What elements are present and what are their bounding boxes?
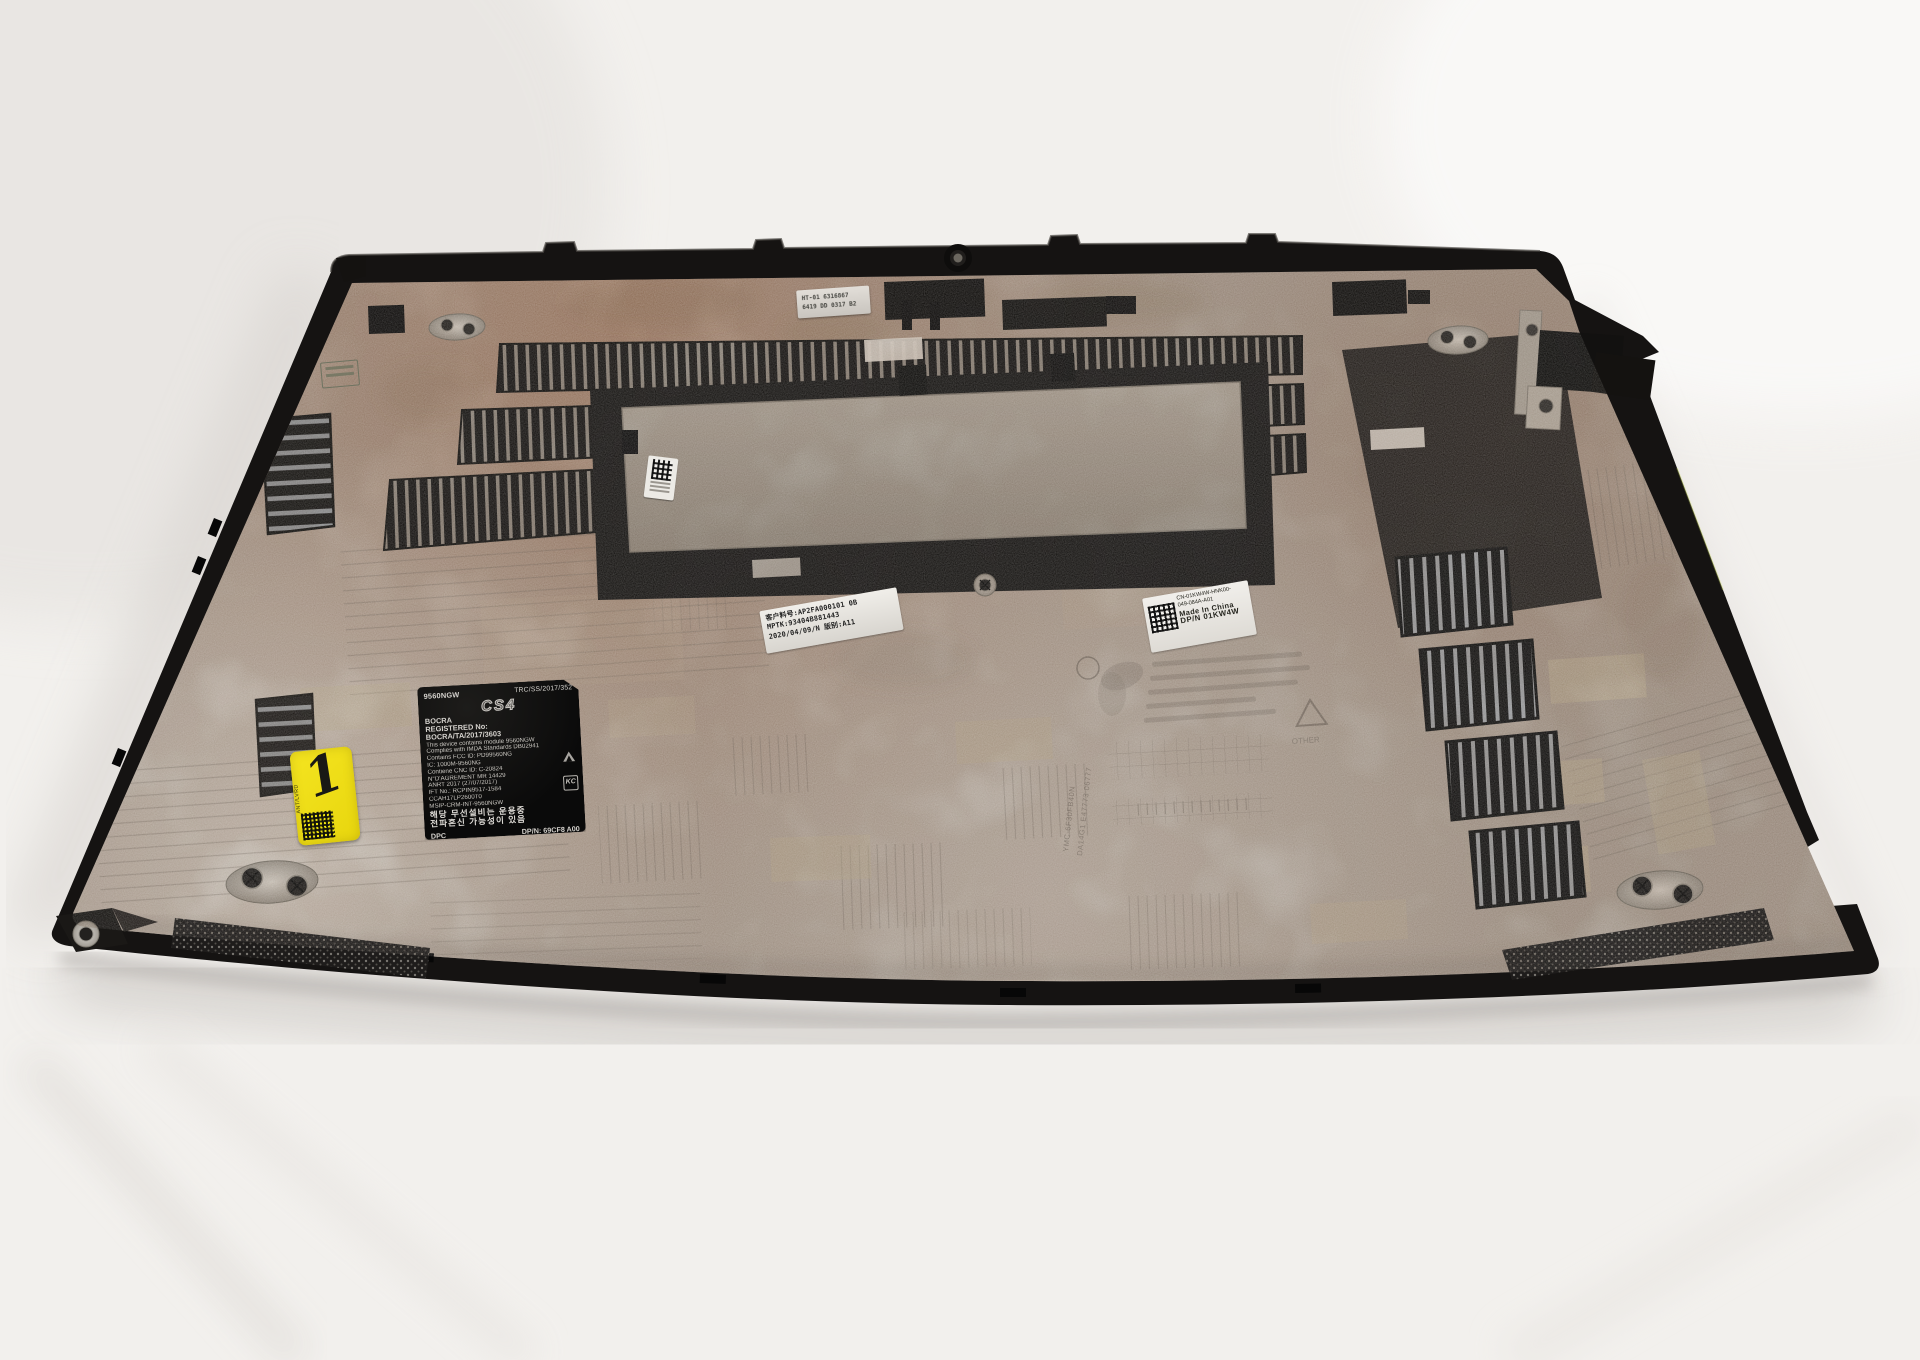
datamatrix-icon: [301, 810, 336, 840]
service-tag-label: HT-01 6316867 6419 DD 0317 B2: [796, 285, 871, 318]
small-qr-label: [644, 455, 679, 500]
laptop-bottom-cover: OTHER YMC-6F30FB40N DA14G1 E47773 06777: [40, 228, 1888, 1020]
inspection-side-text: ANT/LVRD: [293, 784, 302, 814]
regulatory-model: 9560NGW: [423, 690, 459, 701]
kc-certification-icon: KC: [563, 775, 579, 791]
cover-photo-rendering: OTHER YMC-6F30FB40N DA14G1 E47773 06777: [0, 0, 1920, 1360]
regulatory-label: 9560NGW TRC/SS/2017/352 CS4 BOCRA REGIST…: [417, 679, 586, 840]
qr-code-icon: [651, 459, 673, 481]
micro-text-line: [649, 489, 669, 493]
qr-code-icon: [1148, 602, 1179, 633]
foil-stripe: [326, 372, 354, 377]
green-foil-sticker: [320, 359, 360, 388]
yellow-inspection-label: 1 ANT/LVRD: [289, 746, 360, 846]
recycle-triangle-icon: [563, 751, 576, 762]
inspection-digit: 1: [297, 741, 352, 811]
photo-canvas: OTHER YMC-6F30FB40N DA14G1 E47773 06777: [0, 0, 1920, 1360]
foil-stripe: [325, 365, 353, 370]
dpc-mark: DPC: [431, 831, 447, 841]
